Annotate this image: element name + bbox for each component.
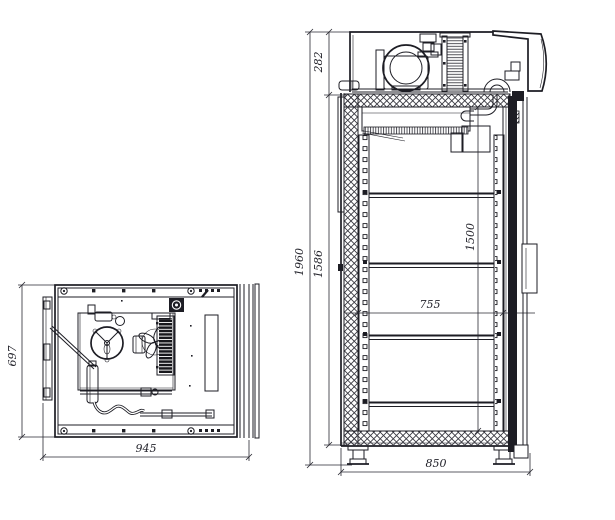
dim-overall-width-label: 850 (426, 457, 447, 470)
door-edge-top-view (240, 284, 259, 438)
foot-left (347, 446, 369, 464)
compressor-top-view (91, 327, 123, 362)
top-front-cover (493, 31, 546, 101)
dim-depth-697-label: 697 (6, 346, 19, 367)
rear-panel-top-view (43, 297, 52, 400)
dim-width-945-label: 945 (136, 442, 157, 455)
condenser-top-view (156, 316, 174, 375)
door-handle (522, 244, 537, 293)
dim-machine-height-label: 282 (312, 52, 325, 74)
dim-overall-height-label: 1960 (293, 248, 306, 276)
condenser-side-view (431, 33, 470, 91)
piping-top-view (50, 326, 214, 418)
dim-body-height-label: 1586 (312, 250, 325, 278)
compressor-side-view (376, 34, 438, 91)
shelf (369, 402, 494, 407)
cabinet-body-top-view (55, 285, 237, 437)
suction-pipe-hump (484, 79, 510, 92)
evaporator (362, 107, 474, 141)
shelf-rail-left (359, 135, 369, 431)
insulation-bottom (344, 431, 510, 446)
machine-compartment (339, 31, 546, 101)
dim-interior-width-label: 755 (420, 298, 441, 311)
dim-body-height-1586: 1586 282 (312, 29, 348, 448)
dim-interior-height-label: 1500 (464, 223, 477, 251)
dim-width-945: 945 (40, 403, 252, 461)
dim-depth-697: 697 (6, 282, 56, 440)
dim-interior-width-755: 755 (346, 298, 535, 316)
front-section-view: 1960 1586 282 (293, 29, 546, 476)
door-bottom-cap (514, 445, 528, 458)
drawing-canvas: 697 945 (0, 0, 615, 520)
dim-overall-width-850: 850 (338, 448, 533, 476)
vent-slot (205, 315, 218, 391)
shelf (369, 335, 494, 340)
interior-cavity (358, 95, 519, 431)
insulation-left (344, 94, 358, 446)
insulation-top (344, 94, 510, 107)
shelf (369, 193, 494, 198)
shelf (369, 263, 494, 268)
door-section (506, 96, 537, 458)
technical-drawing: 697 945 (0, 0, 615, 520)
shelf-rail-right (494, 135, 504, 431)
dim-interior-height-1500: 1500 (464, 104, 481, 434)
plan-view: 697 945 (6, 282, 259, 461)
vent-fan-unit (152, 290, 208, 319)
